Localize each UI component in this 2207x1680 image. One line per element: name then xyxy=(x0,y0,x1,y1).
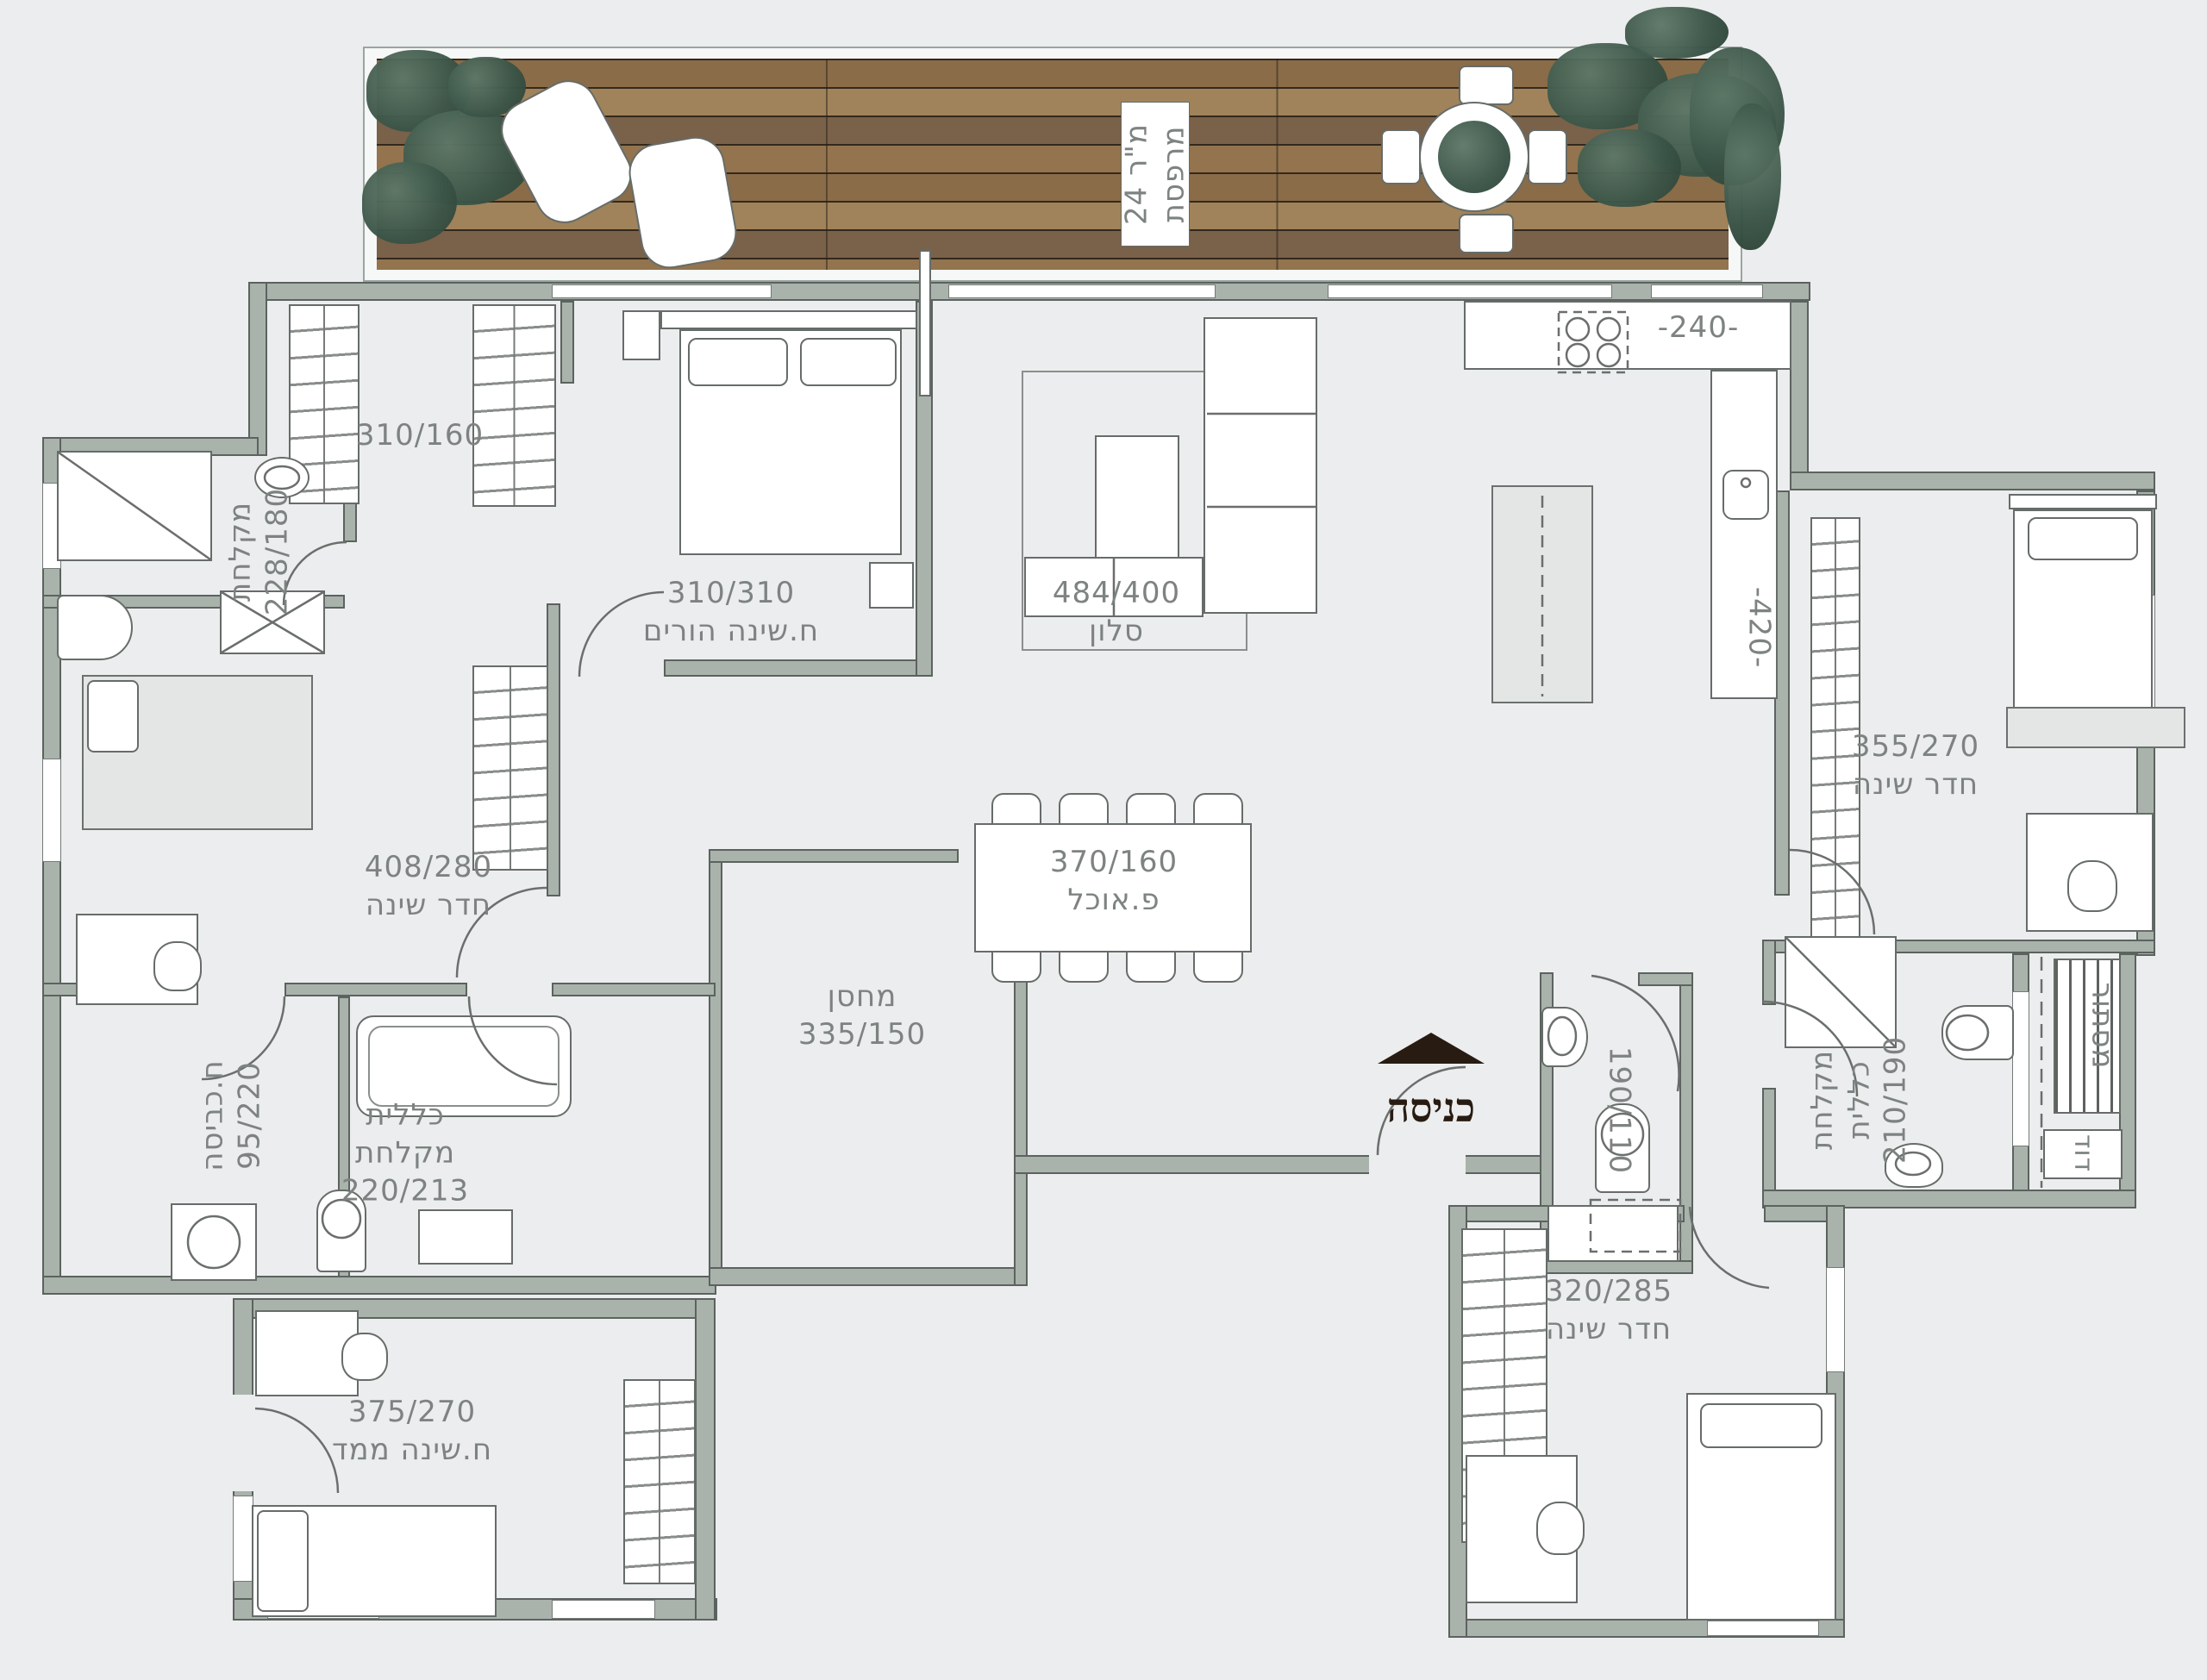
wall xyxy=(552,983,716,996)
wall xyxy=(284,983,467,996)
room-label-bath-top: מקלחת 228/180 xyxy=(222,488,296,615)
bath-general-name2: מקלחת xyxy=(355,1136,455,1171)
wall xyxy=(560,301,574,384)
washing-machine xyxy=(171,1203,257,1281)
room-label-bedroom-bottom-right: 320/285 חדר שינה xyxy=(1545,1272,1672,1348)
window xyxy=(1826,1267,1845,1372)
room-label-laundry: ח.כביסה 95/220 xyxy=(195,1059,268,1171)
shower xyxy=(57,451,212,561)
kitchen-length-value: -420- xyxy=(1741,587,1778,668)
parents-name: ח.שינה הורים xyxy=(643,614,819,648)
parents-dim: 310/310 xyxy=(667,576,795,610)
room-label-storage: מחסן 335/150 xyxy=(798,977,926,1053)
wall xyxy=(1762,1088,1776,1198)
room-label-dining: 370/160 פ.אוכל xyxy=(1050,843,1178,919)
kitchen-island xyxy=(1491,485,1593,703)
wall xyxy=(248,282,267,456)
safe-bedroom-name: ח.שינה ממד xyxy=(332,1433,492,1467)
window xyxy=(948,284,1216,298)
floor-plan: 24 מ"ר מרפסת xyxy=(0,0,2207,1680)
bath-right-name2: כללית xyxy=(1841,1036,1878,1164)
window xyxy=(2012,991,2029,1146)
wall xyxy=(709,849,959,863)
boiler-label: דוד xyxy=(2066,1134,2099,1172)
balcony-label: 24 מ"ר מרפסת xyxy=(1119,123,1192,225)
wall xyxy=(547,603,560,896)
room-label-toilet: 190/110 xyxy=(1601,1046,1638,1174)
bath-general-name1: כללית xyxy=(366,1098,445,1133)
bath-general-dim: 220/213 xyxy=(341,1174,469,1208)
laundry-dim: 95/220 xyxy=(231,1059,268,1171)
utility-name: מסתור xyxy=(2084,983,2121,1070)
wall xyxy=(1014,1155,1550,1174)
boiler-name: דוד xyxy=(2066,1134,2099,1172)
kitchen-width-value: -240- xyxy=(1658,310,1739,345)
room-label-living: 484/400 סלון xyxy=(1053,574,1180,650)
desk-chair xyxy=(341,1333,388,1381)
window xyxy=(552,284,772,298)
wall xyxy=(1638,972,1693,986)
window xyxy=(42,759,61,862)
wall xyxy=(695,1298,716,1621)
coffee-table xyxy=(1095,435,1179,575)
deck-chair xyxy=(1528,129,1567,184)
shower xyxy=(1785,936,1897,1048)
bedroom-br-dim: 320/285 xyxy=(1545,1274,1672,1308)
room-label-bath-right: מקלחת כללית 210/190 xyxy=(1804,1036,1914,1164)
plant-icon xyxy=(1724,103,1781,250)
bedroom-right-dim: 355/270 xyxy=(1852,729,1979,764)
bedroom-br-name: חדר שינה xyxy=(1546,1312,1672,1346)
room-label-bath-general: כללית מקלחת 220/213 xyxy=(341,1096,469,1211)
sofa xyxy=(1204,317,1317,614)
living-dim: 484/400 xyxy=(1053,576,1180,610)
room-label-bedroom-right: 355/270 חדר שינה xyxy=(1852,728,1979,803)
window xyxy=(1707,1621,1819,1636)
dining-name: פ.אוכל xyxy=(1067,883,1160,917)
wardrobe xyxy=(623,1379,696,1584)
balcony-area: 24 מ"ר xyxy=(1119,123,1156,225)
bedroom-left-dim: 408/280 xyxy=(365,850,492,884)
room-label-bedroom-left: 408/280 חדר שינה xyxy=(365,848,492,924)
deck-chair xyxy=(1459,66,1514,105)
bathtub-inner xyxy=(368,1026,560,1107)
kitchen-width-dim: -240- xyxy=(1658,309,1739,347)
storage-name: מחסן xyxy=(828,979,897,1014)
utility-label: מסתור xyxy=(2084,983,2121,1070)
door-gap xyxy=(233,1395,253,1491)
bedroom-right-name: חדר שינה xyxy=(1853,767,1979,802)
balcony-name: מרפסת xyxy=(1155,123,1192,225)
wall xyxy=(709,1267,1028,1286)
wardrobe xyxy=(472,665,548,871)
wall xyxy=(1790,472,2155,490)
wall xyxy=(1679,972,1693,1274)
bath-top-name: מקלחת xyxy=(222,488,259,615)
window xyxy=(233,1496,253,1582)
pillow xyxy=(257,1510,309,1612)
bed-headboard xyxy=(2009,494,2157,509)
table-plant-icon xyxy=(1438,121,1510,193)
wall xyxy=(1790,301,1809,490)
entrance-label: כניסה xyxy=(1387,1084,1475,1131)
wall xyxy=(1762,940,1776,1005)
toilet xyxy=(57,595,133,660)
pillow xyxy=(2028,517,2138,560)
sink-vanity xyxy=(418,1209,513,1265)
deck-chair xyxy=(1459,214,1514,253)
wall xyxy=(664,659,933,677)
desk-chair xyxy=(1536,1502,1585,1555)
bedroom-left-name: חדר שינה xyxy=(366,888,491,922)
nightstand xyxy=(869,562,914,609)
storage-dim: 335/150 xyxy=(798,1017,926,1052)
bed-headboard xyxy=(660,310,917,329)
deck-chair xyxy=(1381,129,1421,184)
wall xyxy=(709,849,722,1286)
safe-bedroom-dim: 375/270 xyxy=(348,1395,476,1429)
bath-right-name1: מקלחת xyxy=(1804,1036,1841,1164)
kitchen-length-dim: -420- xyxy=(1741,587,1778,668)
living-name: סלון xyxy=(1089,614,1144,648)
toilet xyxy=(1941,1005,2014,1060)
rug xyxy=(2006,707,2185,748)
nightstand xyxy=(622,310,660,360)
cabinet xyxy=(1547,1205,1679,1262)
entrance-arrow-icon xyxy=(1378,1033,1485,1064)
window xyxy=(1328,284,1612,298)
bath-right-dim: 210/190 xyxy=(1877,1036,1914,1164)
laundry-name: ח.כביסה xyxy=(195,1059,232,1171)
kitchen-counter xyxy=(1464,301,1791,370)
entrance-text: כניסה xyxy=(1387,1084,1475,1131)
door-gap xyxy=(1369,1153,1466,1176)
closets-dim: 310/160 xyxy=(356,418,484,453)
pillow xyxy=(1700,1403,1822,1448)
tv xyxy=(919,250,931,397)
window xyxy=(1651,284,1763,298)
toilet-dim: 190/110 xyxy=(1601,1046,1638,1174)
pillow xyxy=(688,338,788,386)
room-label-safe-bedroom: 375/270 ח.שינה ממד xyxy=(332,1393,492,1469)
wardrobe xyxy=(472,304,556,507)
pillow xyxy=(800,338,897,386)
room-label-closets: 310/160 xyxy=(356,416,484,454)
sink xyxy=(1541,1007,1588,1067)
window xyxy=(552,1600,655,1619)
bath-top-dim: 228/180 xyxy=(259,488,296,615)
wall xyxy=(42,1276,716,1295)
dining-dim: 370/160 xyxy=(1050,845,1178,879)
desk-chair xyxy=(153,941,202,991)
room-label-parents: 310/310 ח.שינה הורים xyxy=(643,574,819,650)
pillow xyxy=(87,680,139,753)
desk-chair xyxy=(2067,860,2117,912)
kitchen-sink xyxy=(1722,470,1769,520)
